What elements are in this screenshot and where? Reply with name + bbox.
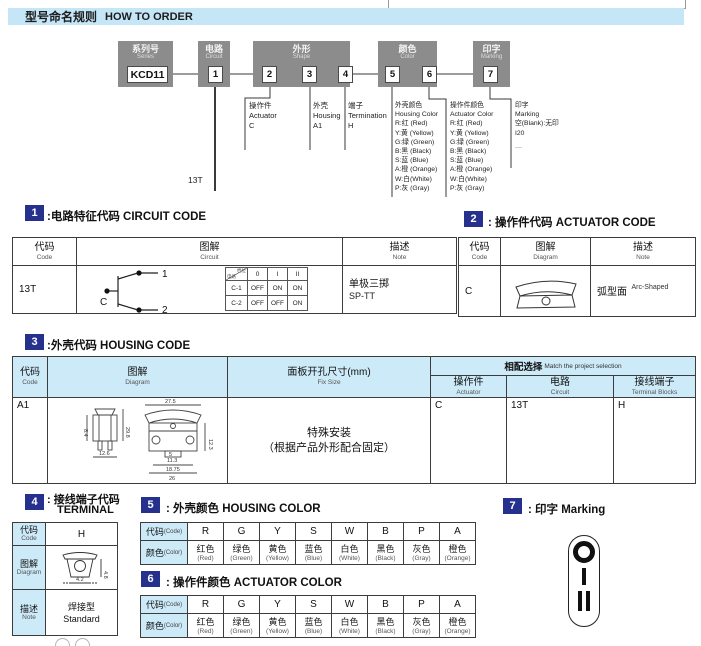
section7-badge: 7: [503, 498, 522, 514]
color-code: G: [224, 523, 260, 541]
annotation-circuit-code: 13T: [188, 175, 212, 185]
th-diagram: 图解 Diagram: [48, 357, 228, 398]
color-code: Y: [260, 523, 296, 541]
annotation-housing-en: Housing: [313, 111, 341, 121]
digit-box-5: 5: [385, 66, 400, 83]
color-item: Y:黄 (Yellow): [450, 129, 504, 138]
color-name: 灰色(Gray): [404, 614, 440, 638]
color-item: A:橙 (Orange): [395, 165, 445, 174]
color-code: G: [224, 596, 260, 614]
annotation-marking-en: Marking: [515, 110, 575, 119]
annotation-housing-code: A1: [313, 121, 341, 131]
marking-symbol-I: [582, 568, 586, 585]
pole-label: C: [100, 297, 107, 308]
section1-badge: 1: [25, 205, 44, 221]
th-match-selection: 相配选择 Match the project selection: [431, 357, 696, 376]
color-item: R:红 (Red): [450, 119, 504, 128]
color-name: 蓝色(Blue): [296, 541, 332, 565]
dim-29-8: 29.8: [124, 427, 130, 438]
th-code-label: 代码 (Code): [141, 523, 188, 541]
color-name: 灰色(Gray): [404, 541, 440, 565]
th-color-label: 颜色 (Color): [141, 614, 188, 638]
marking-symbol-O: [573, 541, 595, 563]
page-bottom-artifact: [55, 638, 70, 646]
digit-box-6: 6: [422, 66, 437, 83]
annotation-marking-more: —: [515, 143, 575, 152]
digit-box-7: 7: [483, 66, 498, 83]
color-item: S:蓝 (Blue): [395, 156, 445, 165]
th-code: 代码 Code: [13, 523, 46, 546]
shape-label-zh: 外形: [253, 44, 350, 54]
section2-badge: 2: [464, 211, 483, 227]
marking-symbol-II: [578, 591, 590, 611]
contact-2-label: 2: [162, 305, 168, 313]
color-name: 红色(Red): [188, 541, 224, 565]
annotation-actuator-code: C: [249, 121, 277, 131]
color-name: 橙色(Orange): [440, 614, 476, 638]
color-item: G:绿 (Green): [450, 138, 504, 147]
actuator-code-table: 代码 Code 图解 Diagram 描述 Note C 弧型面: [458, 237, 696, 317]
annotation-marking: 印字 Marking 空(Blank):无印 I20 —: [515, 101, 575, 152]
color-code: B: [368, 596, 404, 614]
annotation-marking-blank: 空(Blank):无印: [515, 119, 575, 128]
th-diagram: 图解 Diagram: [13, 546, 46, 590]
housing-drawing: 27.5 29.8 8.4 12.6 5 11.3 18.75 26 12.3: [49, 399, 227, 483]
color-code: A: [440, 596, 476, 614]
th-note: 描述 Note: [13, 590, 46, 636]
fix-size-line2: （根据产品外形配合固定）: [263, 441, 395, 456]
th-diagram: 图解 Diagram: [501, 238, 591, 266]
series-code-box: KCD11: [127, 66, 168, 83]
th-note: 描述 Note: [591, 238, 696, 266]
td-housing-diagram: 27.5 29.8 8.4 12.6 5 11.3 18.75 26 12.3: [48, 398, 228, 484]
th-fix-size: 面板开孔尺寸(mm) Fix Size: [228, 357, 431, 398]
color-name: 黑色(Black): [368, 541, 404, 565]
annotation-marking-code: I20: [515, 129, 575, 138]
circuit-code-table: 代码 Code 图解 Circuit 描述 Note 13T: [12, 237, 457, 314]
digit-box-2: 2: [262, 66, 277, 83]
housing-code-table: 代码 Code 图解 Diagram 面板开孔尺寸(mm) Fix Size 相…: [12, 356, 696, 484]
th-code: 代码 Code: [13, 238, 77, 266]
th-color-label: 颜色 (Color): [141, 541, 188, 565]
td-terminal-diagram: 4.8 4.2: [46, 546, 118, 590]
color-item: S:蓝 (Blue): [450, 156, 504, 165]
color-item: Y:黄 (Yellow): [395, 129, 445, 138]
color-code: P: [404, 596, 440, 614]
color-code: B: [368, 523, 404, 541]
fix-size-line1: 特殊安装: [307, 426, 351, 441]
actuator-color-table: 代码 (Code) R G Y S W B P A 颜色 (Color) 红色(…: [140, 595, 476, 638]
annotation-actuator-zh: 操作件: [249, 101, 277, 111]
section6-title: : 操作件颜色 ACTUATOR COLOR: [166, 574, 342, 590]
state-table-corner: 档位 电路: [226, 268, 248, 281]
digit-box-3: 3: [302, 66, 317, 83]
color-name: 白色(White): [332, 614, 368, 638]
circuit-label-zh: 电路: [198, 44, 230, 54]
color-item: G:绿 (Green): [395, 138, 445, 147]
color-name: 绿色(Green): [224, 541, 260, 565]
section5-badge: 5: [141, 497, 160, 513]
section7-title: : 印字 Marking: [528, 501, 605, 517]
color-item: B:黑 (Black): [450, 147, 504, 156]
annotation-marking-zh: 印字: [515, 101, 575, 110]
td-match-actuator: C: [431, 398, 507, 484]
annotation-termination: 端子 Termination H: [348, 101, 387, 131]
annotation-housing-color-zh: 外壳颜色: [395, 101, 445, 110]
terminal-code-table: 代码 Code H 图解 Diagram 4.8: [12, 522, 118, 636]
td-match-terminal: H: [614, 398, 696, 484]
td-fix-size: 特殊安装 （根据产品外形配合固定）: [228, 398, 431, 484]
color-item: W:白(White): [395, 175, 445, 184]
color-name: 红色(Red): [188, 614, 224, 638]
marking-symbol: [568, 535, 600, 627]
dim-12-3: 12.3: [207, 439, 213, 450]
color-name: 绿色(Green): [224, 614, 260, 638]
dim-4-8: 4.8: [102, 571, 108, 579]
color-code: S: [296, 596, 332, 614]
color-label-en: Color: [378, 54, 437, 61]
annotation-actuator-color: 操作件颜色 Actuator Color R:红 (Red) Y:黄 (Yell…: [450, 101, 504, 193]
color-code: W: [332, 596, 368, 614]
th-code: 代码 Code: [13, 357, 48, 398]
color-name: 白色(White): [332, 541, 368, 565]
dim-26: 26: [169, 476, 175, 482]
color-item: B:黑 (Black): [395, 147, 445, 156]
page-title-en: HOW TO ORDER: [105, 11, 193, 23]
color-item: R:红 (Red): [395, 119, 445, 128]
page-bottom-artifact: [75, 638, 90, 646]
td-housing-code: A1: [13, 398, 48, 484]
color-code: A: [440, 523, 476, 541]
th-match-circuit: 电路 Circuit: [507, 376, 614, 398]
digit-box-1: 1: [208, 66, 223, 83]
color-code: Y: [260, 596, 296, 614]
dim-18-75: 18.75: [166, 467, 180, 473]
page-title-bar: 型号命名规则 HOW TO ORDER: [8, 8, 684, 25]
annotation-termination-code: H: [348, 121, 387, 131]
color-label-zh: 颜色: [378, 44, 437, 54]
dim-11-3: 11.3: [167, 458, 177, 464]
circuit-label-en: Circuit: [198, 54, 230, 61]
actuator-drawing: [502, 267, 590, 316]
th-code: 代码 Code: [459, 238, 501, 266]
section1-title: :电路特征代码 CIRCUIT CODE: [47, 208, 206, 224]
color-name: 橙色(Orange): [440, 541, 476, 565]
marking-label-zh: 印字: [473, 44, 510, 54]
td-circuit-note: 单极三掷 SP-TT: [343, 266, 457, 314]
th-diagram: 图解 Circuit: [77, 238, 343, 266]
page-title-zh: 型号命名规则: [25, 8, 97, 25]
section3-title: :外壳代码 HOUSING CODE: [47, 337, 190, 353]
section4-title-line2: TERMINAL: [57, 504, 114, 516]
housing-color-table: 代码 (Code) R G Y S W B P A 颜色 (Color) 红色(…: [140, 522, 476, 565]
td-actuator-code: C: [459, 266, 501, 317]
annotation-housing-zh: 外壳: [313, 101, 341, 111]
section5-title: : 外壳颜色 HOUSING COLOR: [166, 500, 321, 516]
order-guide-page: 型号命名规则 HOW TO ORDER 系列号 Series KCD11 电路 …: [0, 0, 701, 646]
td-terminal-code: H: [46, 523, 118, 546]
td-circuit-code: 13T: [13, 266, 77, 314]
td-terminal-note: 焊接型 Standard: [46, 590, 118, 636]
th-note: 描述 Note: [343, 238, 457, 266]
section2-title: : 操作件代码 ACTUATOR CODE: [488, 214, 656, 230]
td-actuator-note: 弧型面 Arc-Shaped: [591, 266, 696, 317]
color-code: W: [332, 523, 368, 541]
color-name: 黑色(Black): [368, 614, 404, 638]
color-code: R: [188, 596, 224, 614]
terminal-drawing: 4.8 4.2: [47, 547, 117, 589]
color-item: A:橙 (Orange): [450, 165, 504, 174]
dim-27-5: 27.5: [165, 399, 176, 405]
series-label-zh: 系列号: [118, 44, 173, 54]
th-match-actuator: 操作件 Actuator: [431, 376, 507, 398]
th-match-terminal: 接线端子 Terminal Blocks: [614, 376, 696, 398]
color-item: W:白(White): [450, 175, 504, 184]
annotation-actuator-color-zh: 操作件颜色: [450, 101, 504, 110]
annotation-actuator-color-en: Actuator Color: [450, 110, 504, 119]
annotation-termination-zh: 端子: [348, 101, 387, 111]
section6-badge: 6: [141, 571, 160, 587]
section3-badge: 3: [25, 334, 44, 350]
annotation-housing-color-en: Housing Color: [395, 110, 445, 119]
color-code: S: [296, 523, 332, 541]
color-code: R: [188, 523, 224, 541]
contact-1-label: 1: [162, 269, 168, 280]
annotation-actuator-en: Actuator: [249, 111, 277, 121]
annotation-housing-color: 外壳颜色 Housing Color R:红 (Red) Y:黄 (Yellow…: [395, 101, 445, 193]
td-match-circuit: 13T: [507, 398, 614, 484]
section4-badge: 4: [25, 494, 44, 510]
series-label-en: Series: [118, 54, 173, 61]
dim-4-2: 4.2: [76, 577, 84, 583]
color-name: 蓝色(Blue): [296, 614, 332, 638]
shape-label-en: Shape: [253, 54, 350, 61]
annotation-housing: 外壳 Housing A1: [313, 101, 341, 131]
color-name: 黄色(Yellow): [260, 614, 296, 638]
color-item: P:灰 (Gray): [450, 184, 504, 193]
color-item: P:灰 (Gray): [395, 184, 445, 193]
dim-12-6: 12.6: [99, 451, 110, 457]
color-name: 黄色(Yellow): [260, 541, 296, 565]
annotation-termination-en: Termination: [348, 111, 387, 121]
marking-label-en: Marking: [473, 54, 510, 61]
td-circuit-diagram: 1 2 C 档位 电路 0 I II C-1 OFF ON ON C-2 OFF…: [77, 266, 343, 314]
digit-box-4: 4: [338, 66, 353, 83]
state-table: 档位 电路 0 I II C-1 OFF ON ON C-2 OFF OFF O…: [225, 267, 308, 311]
th-code-label: 代码 (Code): [141, 596, 188, 614]
color-code: P: [404, 523, 440, 541]
annotation-actuator: 操作件 Actuator C: [249, 101, 277, 131]
td-actuator-diagram: [501, 266, 591, 317]
dim-8-4: 8.4: [82, 429, 88, 437]
